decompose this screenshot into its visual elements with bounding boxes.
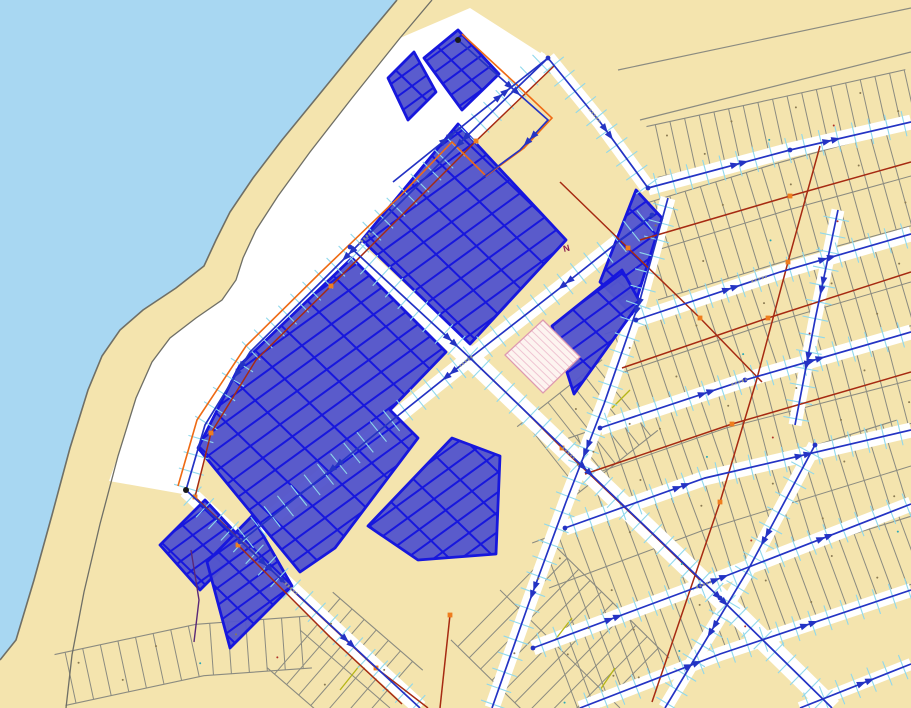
map-canvas[interactable]: N <box>0 0 911 708</box>
map-viewport[interactable]: N <box>0 0 911 708</box>
